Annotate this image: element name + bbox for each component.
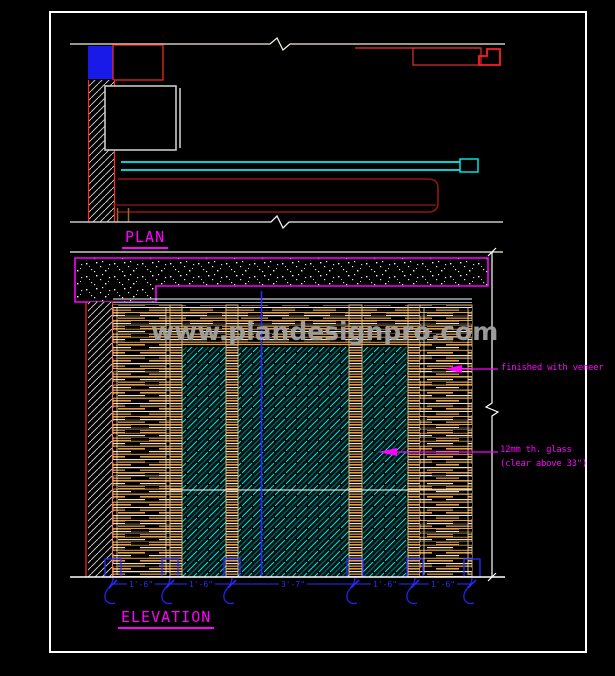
dimension-label-3: 3'-7"	[279, 580, 307, 589]
anchor-hook	[407, 578, 417, 604]
annotation-glass-line1: 12mm th. glass	[500, 445, 572, 455]
anchor-hook	[162, 578, 172, 604]
anchor-hook	[105, 578, 115, 604]
plan-red-box-right	[413, 48, 481, 65]
glass-panel-1	[182, 347, 226, 577]
plan-glass-end-cap	[460, 159, 478, 172]
dimension-line-right	[486, 248, 498, 581]
plan-view	[70, 38, 505, 228]
dimension-label-2: 1'-6"	[187, 580, 215, 589]
dimension-label-1: 1'-6"	[127, 580, 155, 589]
slab-speckle-band	[75, 258, 488, 302]
annotation-veneer: finished with veneer	[501, 363, 603, 373]
dimension-line-vertical	[486, 252, 498, 577]
elevation-view	[70, 248, 505, 604]
watermark: www.plandesignpro.com	[151, 317, 498, 346]
anchor-hook	[464, 578, 474, 604]
dimension-label-4: 1'-6"	[371, 580, 399, 589]
elevation-view-title: ELEVATION	[118, 608, 214, 629]
plan-blue-block	[88, 46, 113, 79]
anchor-hook	[347, 578, 357, 604]
plan-bottom-line-with-break	[70, 216, 503, 228]
annotation-glass-line2: (clear above 33")	[500, 459, 587, 469]
plan-view-title: PLAN	[122, 228, 168, 249]
plan-red-clip	[479, 49, 500, 65]
glass-panel-3	[362, 347, 408, 577]
plan-gray-box	[105, 86, 176, 150]
dimension-label-5: 1'-6"	[429, 580, 457, 589]
plan-red-frame-left	[113, 45, 163, 80]
glass-panel-2	[238, 347, 349, 577]
anchor-hook	[224, 578, 234, 604]
cad-drawing-canvas: PLAN ELEVATION www.plandesignpro.com fin…	[0, 0, 615, 676]
elev-wall-hatch	[88, 302, 112, 577]
plan-counter-outline	[118, 179, 438, 212]
